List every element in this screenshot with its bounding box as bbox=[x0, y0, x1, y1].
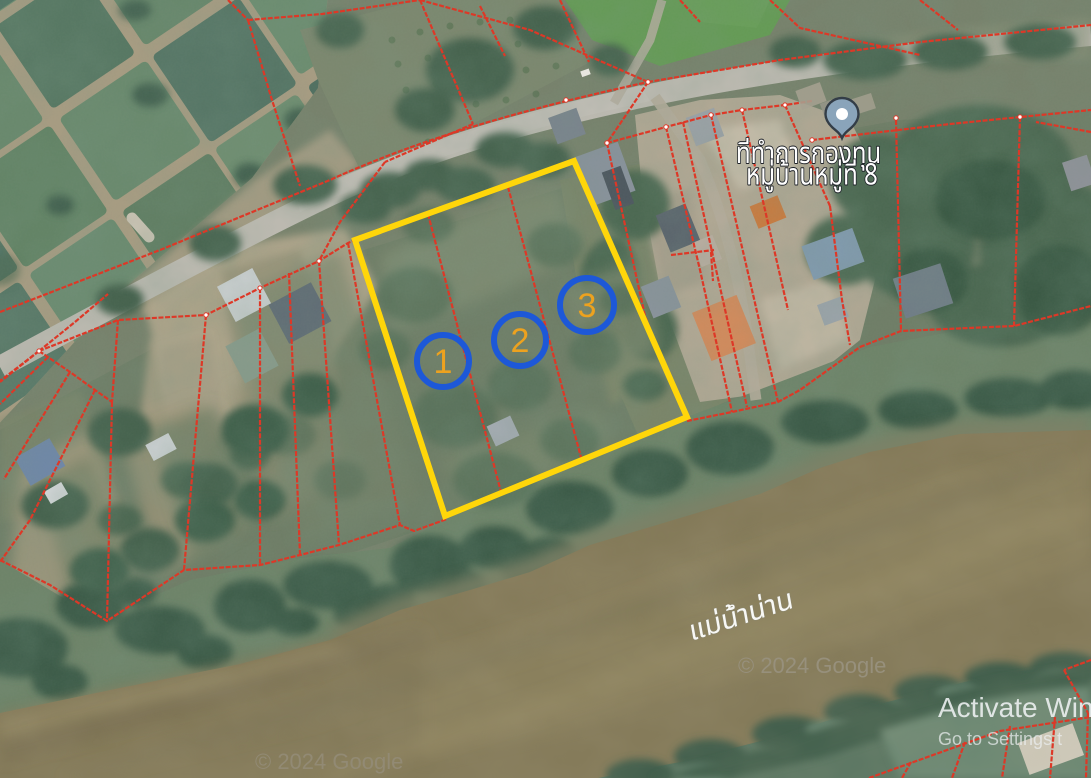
svg-text:Activate Wind: Activate Wind bbox=[938, 692, 1091, 723]
svg-text:© 2024 Google: © 2024 Google bbox=[255, 749, 403, 774]
svg-text:© 2024 Google: © 2024 Google bbox=[738, 653, 886, 678]
svg-text:1: 1 bbox=[434, 343, 453, 381]
svg-text:3: 3 bbox=[578, 287, 597, 325]
svg-text:Go to Settings t: Go to Settings t bbox=[938, 729, 1062, 749]
svg-text:2: 2 bbox=[511, 322, 530, 360]
